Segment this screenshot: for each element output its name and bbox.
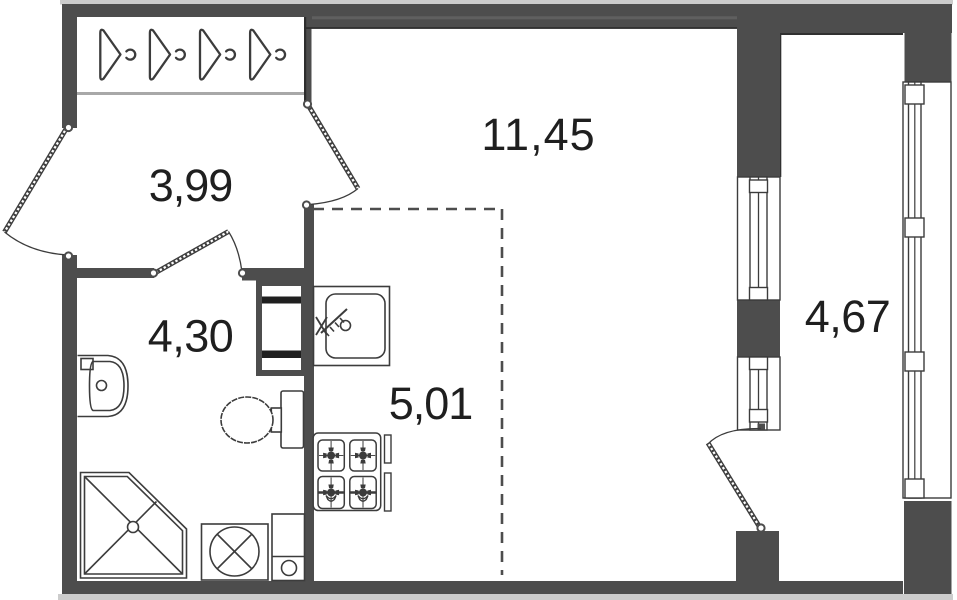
svg-text:3,99: 3,99	[149, 160, 233, 211]
svg-text:11,45: 11,45	[481, 109, 595, 160]
svg-text:4,30: 4,30	[148, 311, 234, 362]
svg-text:5,01: 5,01	[389, 378, 473, 429]
svg-text:4,67: 4,67	[805, 291, 891, 342]
